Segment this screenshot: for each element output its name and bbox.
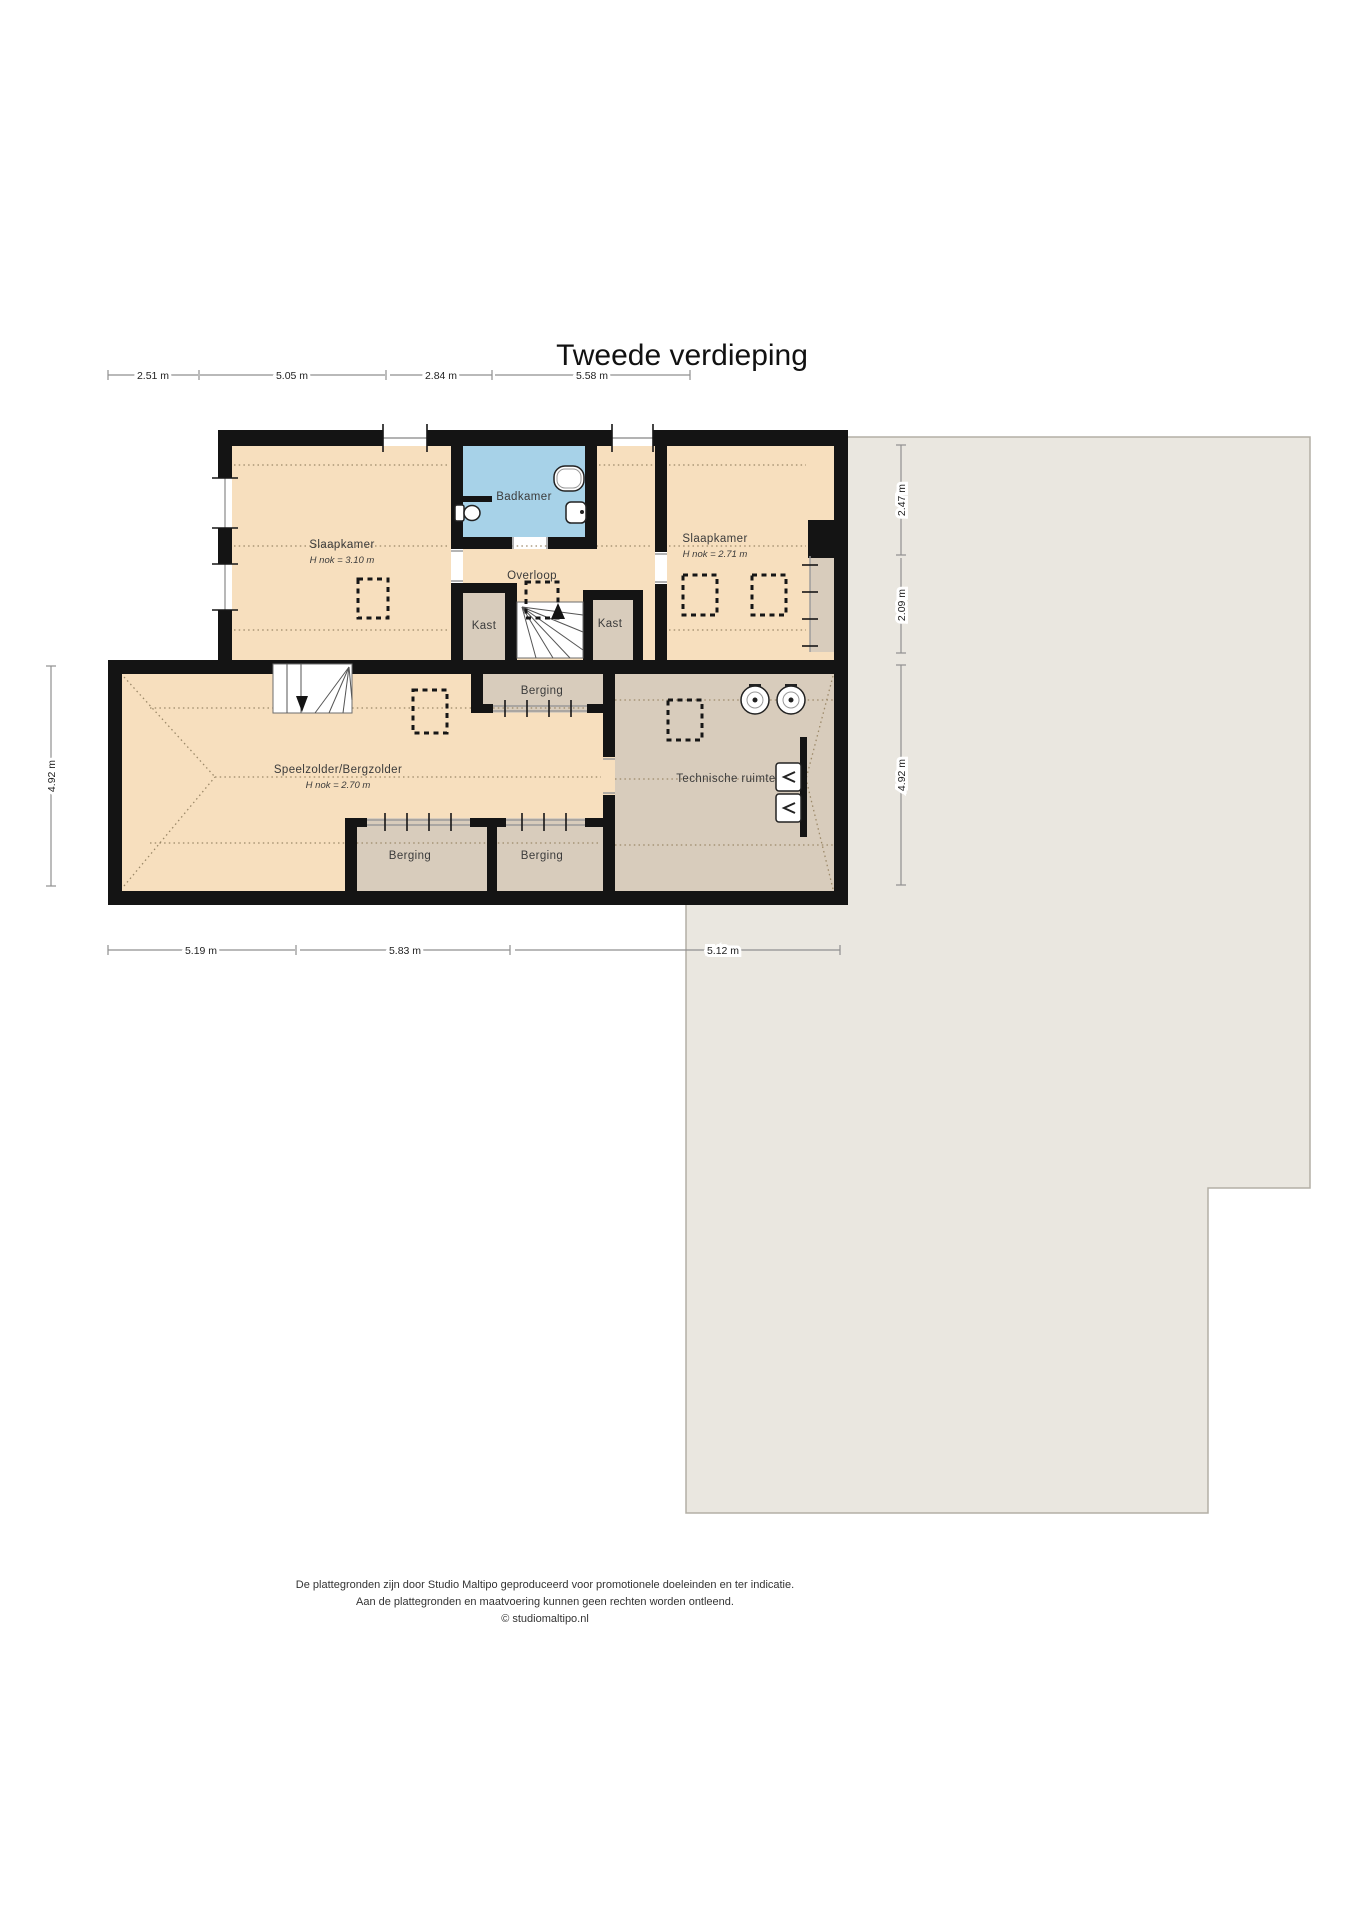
dim-bottom-1: 5.83 m [389,945,421,957]
label-speelzolder-height: H nok = 2.70 m [306,780,371,791]
page-title: Tweede verdieping [556,339,808,372]
floorplan-canvas: Tweede verdieping 2.47 m 2.09 m 4.92 m [0,0,1358,1920]
dimension-lines-top: 2.51 m 5.05 m 2.84 m 5.58 m [108,370,690,382]
appliance-icon-2 [776,794,801,822]
bathtub-icon [554,466,584,491]
dimension-lines-left: 4.92 m [46,666,58,886]
floorplan-page: Tweede verdieping 2.47 m 2.09 m 4.92 m [0,0,1358,1920]
appliance-icon-1 [776,763,801,791]
label-slaapkamer-left-height: H nok = 3.10 m [310,555,375,566]
label-kast-right: Kast [598,618,623,630]
dim-top-0: 2.51 m [137,370,169,382]
room-slaapkamer-right [667,446,834,674]
dim-top-2: 2.84 m [425,370,457,382]
label-kast-left: Kast [472,620,497,632]
label-overloop: Overloop [507,570,557,582]
stairs-lower [273,664,352,713]
footer-disclaimer: De plattegronden zijn door Studio Maltip… [296,1579,794,1625]
label-slaapkamer-right-height: H nok = 2.71 m [683,549,748,560]
built-in-closet-strip [810,556,834,652]
dimension-lines-bottom: 5.19 m 5.83 m 5.12 m [108,945,840,957]
dim-top-1: 5.05 m [276,370,308,382]
label-slaapkamer-left: Slaapkamer [309,539,374,551]
label-badkamer: Badkamer [496,491,552,503]
footer-line-3: © studiomaltipo.nl [501,1613,589,1625]
label-technische-ruimte: Technische ruimte [676,773,775,785]
label-slaapkamer-right: Slaapkamer [682,533,747,545]
footer-line-2: Aan de plattegronden en maatvoering kunn… [356,1596,734,1608]
dim-bottom-2: 5.12 m [707,945,739,957]
toilet-tank-icon [455,505,464,521]
room-overloop-niche [597,446,655,549]
room-kast-right [593,600,633,660]
label-speelzolder: Speelzolder/Bergzolder [274,764,402,776]
label-berging-top: Berging [521,685,563,697]
label-berging-bottom-right: Berging [521,850,563,862]
dim-top-3: 5.58 m [576,370,608,382]
dim-right-1: 2.09 m [896,589,908,621]
dim-right-0: 2.47 m [896,484,908,516]
toilet-bowl-icon [464,506,480,521]
floor-plan: Slaapkamer H nok = 3.10 m Badkamer Overl… [108,424,848,905]
dim-left-0: 4.92 m [46,760,58,792]
dim-right-2: 4.92 m [896,759,908,791]
label-berging-bottom-left: Berging [389,850,431,862]
footer-line-1: De plattegronden zijn door Studio Maltip… [296,1579,794,1591]
dim-bottom-0: 5.19 m [185,945,217,957]
